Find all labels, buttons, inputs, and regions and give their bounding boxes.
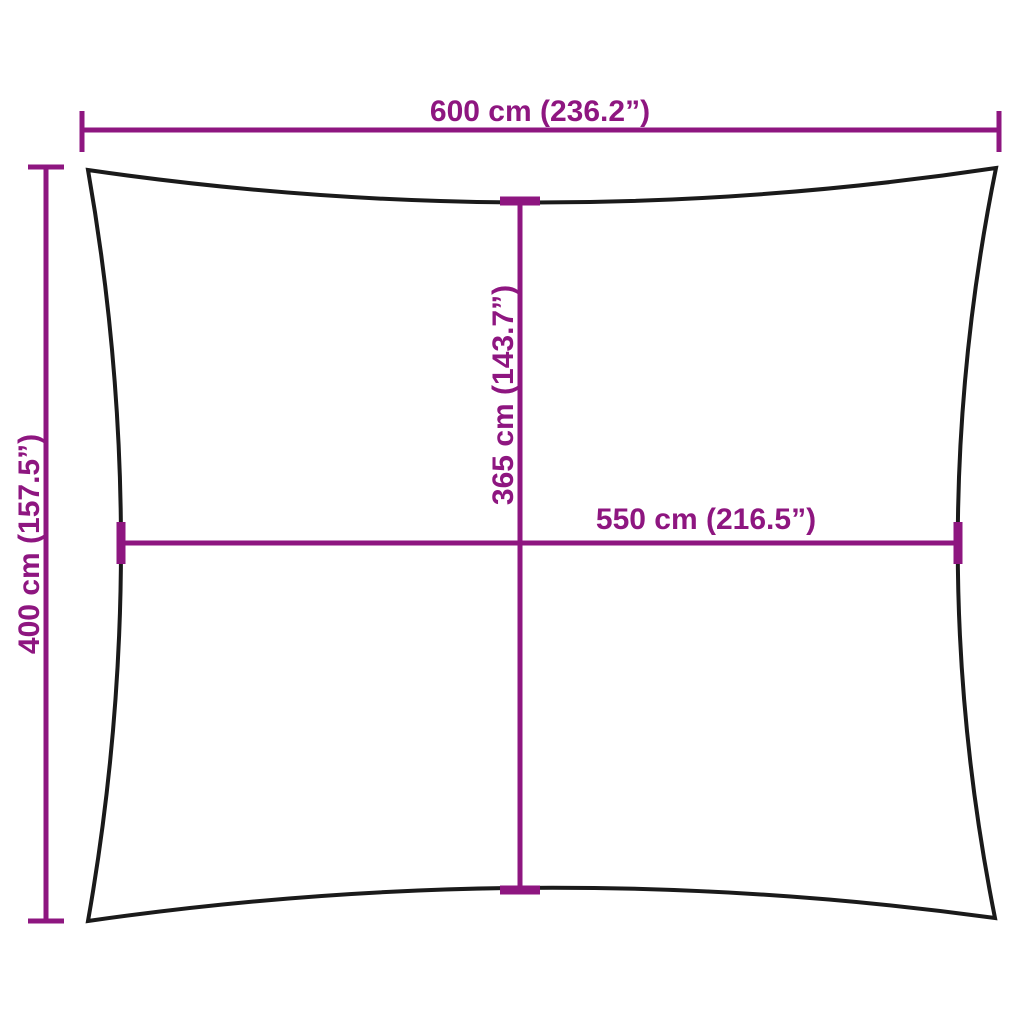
left-height-dimension-label: 400 cm (157.5”)	[13, 434, 46, 654]
center-width-dimension-label: 550 cm (216.5”)	[596, 503, 816, 536]
top-width-dimension: 600 cm (236.2”)	[82, 95, 999, 152]
left-height-dimension: 400 cm (157.5”)	[13, 167, 64, 921]
dimension-diagram: 600 cm (236.2”) 400 cm (157.5”) 365 cm (…	[0, 0, 1024, 1024]
top-width-dimension-label: 600 cm (236.2”)	[430, 95, 650, 128]
center-height-dimension-label: 365 cm (143.7”)	[487, 285, 520, 505]
product-dimension-image: 600 cm (236.2”) 400 cm (157.5”) 365 cm (…	[0, 0, 1024, 1024]
